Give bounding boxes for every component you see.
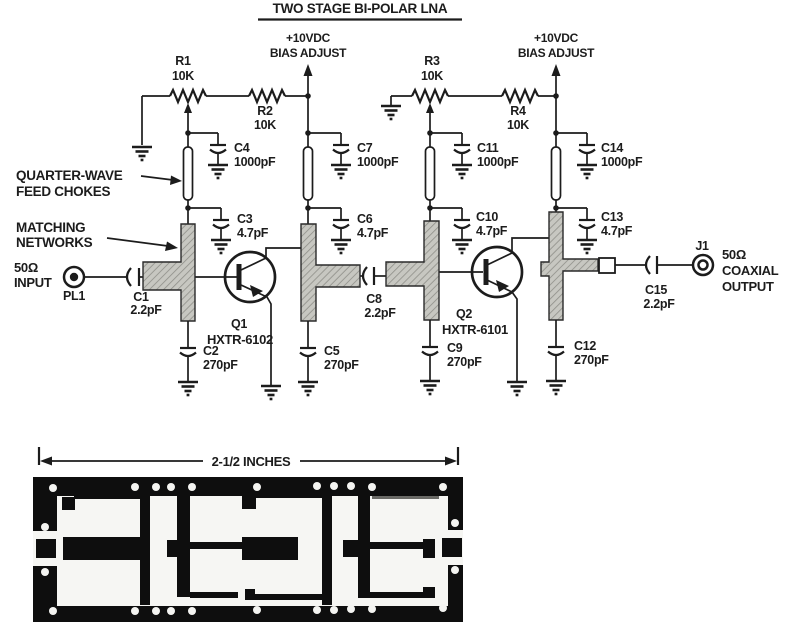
capacitor-c1-symbol — [127, 268, 139, 286]
pcb-stub-line-3 — [322, 496, 332, 605]
pcb-input-line — [63, 537, 140, 560]
bias2-line2: BIAS ADJUST — [518, 46, 595, 60]
pcb-bottom-trace-1 — [190, 592, 238, 598]
bias-arrow-2 — [552, 64, 561, 76]
magazine-figure-page: TWO STAGE BI-POLAR LNA — [0, 0, 792, 636]
bias2-line1: +10VDC — [534, 31, 579, 45]
label-c12-value: 270pF — [574, 353, 609, 367]
label-c15-ref: C15 — [645, 283, 667, 297]
label-c3-value: 4.7pF — [237, 226, 269, 240]
capacitor-c13-symbol — [577, 208, 597, 253]
input-connector-pl1 — [64, 267, 84, 287]
label-output-impedance: 50Ω — [722, 247, 746, 262]
label-output-line2: OUTPUT — [722, 279, 774, 294]
label-c9-value: 270pF — [447, 355, 482, 369]
bias-arrow-1 — [304, 64, 313, 76]
matching-annotation-arrow — [107, 238, 178, 251]
resistor-r1-pot — [170, 90, 206, 113]
label-c10-ref: C10 — [476, 210, 498, 224]
label-c6-value: 4.7pF — [357, 226, 389, 240]
label-c11-ref: C11 — [477, 141, 499, 155]
pcb-bottom-trace-3 — [370, 592, 423, 598]
feed-choke-3 — [426, 147, 435, 200]
feed-choke-1 — [184, 147, 193, 200]
bias1-line2: BIAS ADJUST — [270, 46, 347, 60]
label-c5-ref: C5 — [324, 344, 340, 358]
label-c5-value: 270pF — [324, 358, 359, 372]
pcb-dimension: 2-1/2 INCHES — [39, 447, 458, 469]
output-connector-j1 — [693, 255, 713, 275]
pcb-stub-line-2 — [177, 496, 190, 597]
ground-q1-emitter — [261, 386, 281, 399]
annotation-chokes-line1: QUARTER-WAVE — [16, 168, 123, 183]
label-c15-value: 2.2pF — [643, 297, 675, 311]
feed-choke-2 — [304, 147, 313, 200]
label-q1-ref: Q1 — [231, 317, 247, 331]
annotation-matching-line1: MATCHING — [16, 220, 85, 235]
pcb-dimension-label: 2-1/2 INCHES — [212, 454, 291, 469]
pcb-input-tab — [36, 539, 56, 558]
pcb-pad-bottommid — [245, 589, 255, 600]
label-pl1: PL1 — [63, 289, 85, 303]
label-r1-value: 10K — [172, 69, 194, 83]
label-c4-ref: C4 — [234, 141, 250, 155]
label-c1-value: 2.2pF — [130, 303, 162, 317]
chokes-annotation-arrow — [141, 176, 182, 186]
resistor-r4 — [502, 90, 538, 102]
pcb-top-trace-1 — [74, 495, 140, 499]
resistor-r2 — [249, 90, 285, 102]
label-c13-ref: C13 — [601, 210, 623, 224]
label-r2-value: 10K — [254, 118, 276, 132]
capacitor-c14-symbol — [577, 133, 597, 178]
schematic: TWO STAGE BI-POLAR LNA — [14, 1, 779, 399]
label-j1: J1 — [695, 239, 709, 253]
pcb-top-trace-3 — [372, 496, 439, 499]
pcb-pad-topleft — [62, 497, 75, 510]
pcb-thin-line-1 — [190, 542, 242, 549]
label-c12-ref: C12 — [574, 339, 596, 353]
capacitor-c8-symbol — [363, 267, 374, 285]
label-c9-ref: C9 — [447, 341, 463, 355]
ground-r3 — [381, 106, 401, 119]
pcb-arm-1 — [167, 540, 177, 557]
label-c11-value: 1000pF — [477, 155, 519, 169]
label-q2-part: HXTR-6101 — [442, 322, 508, 337]
label-c6-ref: C6 — [357, 212, 373, 226]
label-c8-ref: C8 — [366, 292, 382, 306]
label-output-line1: COAXIAL — [722, 263, 779, 278]
capacitor-c3-symbol — [211, 208, 231, 253]
output-stub-pad — [599, 258, 615, 273]
label-q2-ref: Q2 — [456, 307, 472, 321]
label-r2-ref: R2 — [257, 104, 273, 118]
label-c14-value: 1000pF — [601, 155, 643, 169]
pcb-bottom-trace-2 — [255, 594, 322, 600]
capacitor-c12-symbol — [546, 320, 566, 394]
label-c4-value: 1000pF — [234, 155, 276, 169]
label-input: INPUT — [14, 275, 52, 290]
pcb-output-pad — [423, 539, 435, 558]
pcb-top-trace-2 — [256, 494, 322, 498]
capacitor-c15-symbol — [646, 256, 657, 274]
label-c2-value: 270pF — [203, 358, 238, 372]
label-c7-ref: C7 — [357, 141, 373, 155]
pcb-interstage-line — [242, 537, 298, 560]
pcb-pad-bottomright — [423, 587, 435, 598]
lna-figure: TWO STAGE BI-POLAR LNA — [0, 0, 792, 636]
label-c3-ref: C3 — [237, 212, 253, 226]
pcb-arm-2 — [343, 540, 358, 557]
capacitor-c2-symbol — [178, 321, 198, 395]
schematic-title: TWO STAGE BI-POLAR LNA — [273, 1, 448, 16]
label-c10-value: 4.7pF — [476, 224, 508, 238]
label-c14-ref: C14 — [601, 141, 623, 155]
ground-r1 — [132, 147, 152, 160]
capacitor-c4-symbol — [208, 133, 228, 178]
pcb-stub-line-4 — [358, 496, 370, 598]
label-c8-value: 2.2pF — [364, 306, 396, 320]
annotation-matching-line2: NETWORKS — [16, 235, 93, 250]
label-r3-value: 10K — [421, 69, 443, 83]
pcb-stub-line-1 — [140, 496, 150, 605]
pcb-output-tab — [442, 538, 462, 557]
capacitor-c5-symbol — [298, 321, 318, 395]
label-input-impedance: 50Ω — [14, 260, 38, 275]
pcb-thin-line-2 — [370, 542, 423, 549]
matching-network-interstage — [301, 224, 360, 321]
capacitor-c10-symbol — [452, 208, 472, 253]
capacitor-c9-symbol — [420, 320, 440, 394]
label-c13-value: 4.7pF — [601, 224, 633, 238]
label-r4-value: 10K — [507, 118, 529, 132]
capacitor-c11-symbol — [452, 133, 472, 178]
resistor-r3-pot — [412, 90, 448, 113]
capacitor-c7-symbol — [331, 133, 351, 178]
label-c1-ref: C1 — [133, 290, 149, 304]
label-r3-ref: R3 — [424, 54, 440, 68]
capacitor-c6-symbol — [331, 208, 351, 253]
label-r1-ref: R1 — [175, 54, 191, 68]
label-q1-part: HXTR-6102 — [207, 332, 273, 347]
ground-q2-emitter — [507, 382, 527, 395]
label-r4-ref: R4 — [510, 104, 526, 118]
annotation-chokes-line2: FEED CHOKES — [16, 184, 111, 199]
feed-choke-4 — [552, 147, 561, 200]
pcb-layout: 2-1/2 INCHES — [33, 447, 463, 622]
bias1-line1: +10VDC — [286, 31, 331, 45]
label-c7-value: 1000pF — [357, 155, 399, 169]
pcb-pad-topmid — [242, 496, 256, 509]
